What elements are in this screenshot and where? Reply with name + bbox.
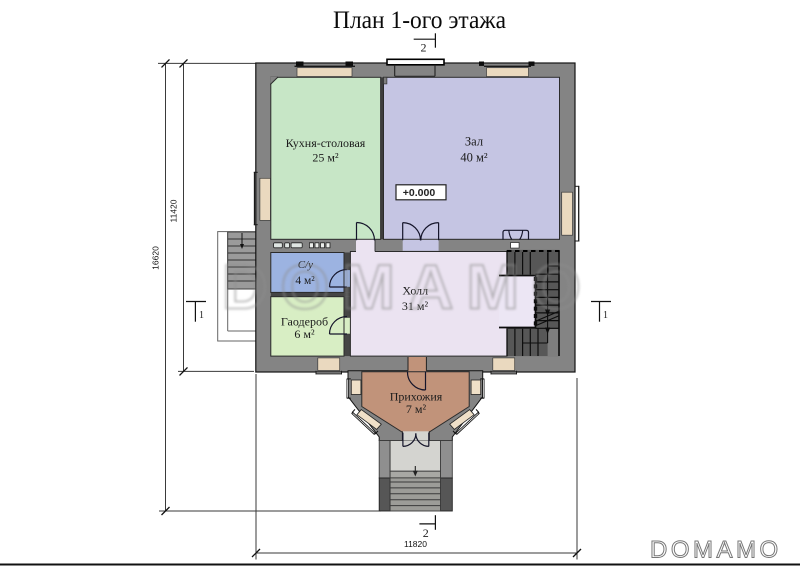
svg-text:25 м²: 25 м² — [312, 150, 339, 164]
svg-text:16620: 16620 — [151, 246, 161, 270]
svg-text:11820: 11820 — [404, 539, 427, 549]
svg-text:11420: 11420 — [169, 199, 179, 222]
svg-text:DOMAMO: DOMAMO — [222, 253, 594, 323]
svg-text:DOMAMO: DOMAMO — [650, 537, 782, 564]
svg-text:План 1-ого этажа: План 1-ого этажа — [333, 7, 506, 34]
svg-text:7 м²: 7 м² — [406, 402, 427, 416]
svg-text:40 м²: 40 м² — [460, 150, 488, 164]
svg-text:6 м²: 6 м² — [294, 327, 315, 341]
svg-text:2: 2 — [421, 41, 427, 55]
svg-text:+0.000: +0.000 — [403, 187, 436, 199]
svg-text:Зал: Зал — [465, 135, 483, 149]
svg-text:1: 1 — [199, 310, 204, 321]
svg-text:1: 1 — [603, 310, 608, 321]
svg-text:2: 2 — [423, 526, 429, 540]
svg-text:Кухня-столовая: Кухня-столовая — [286, 136, 366, 150]
